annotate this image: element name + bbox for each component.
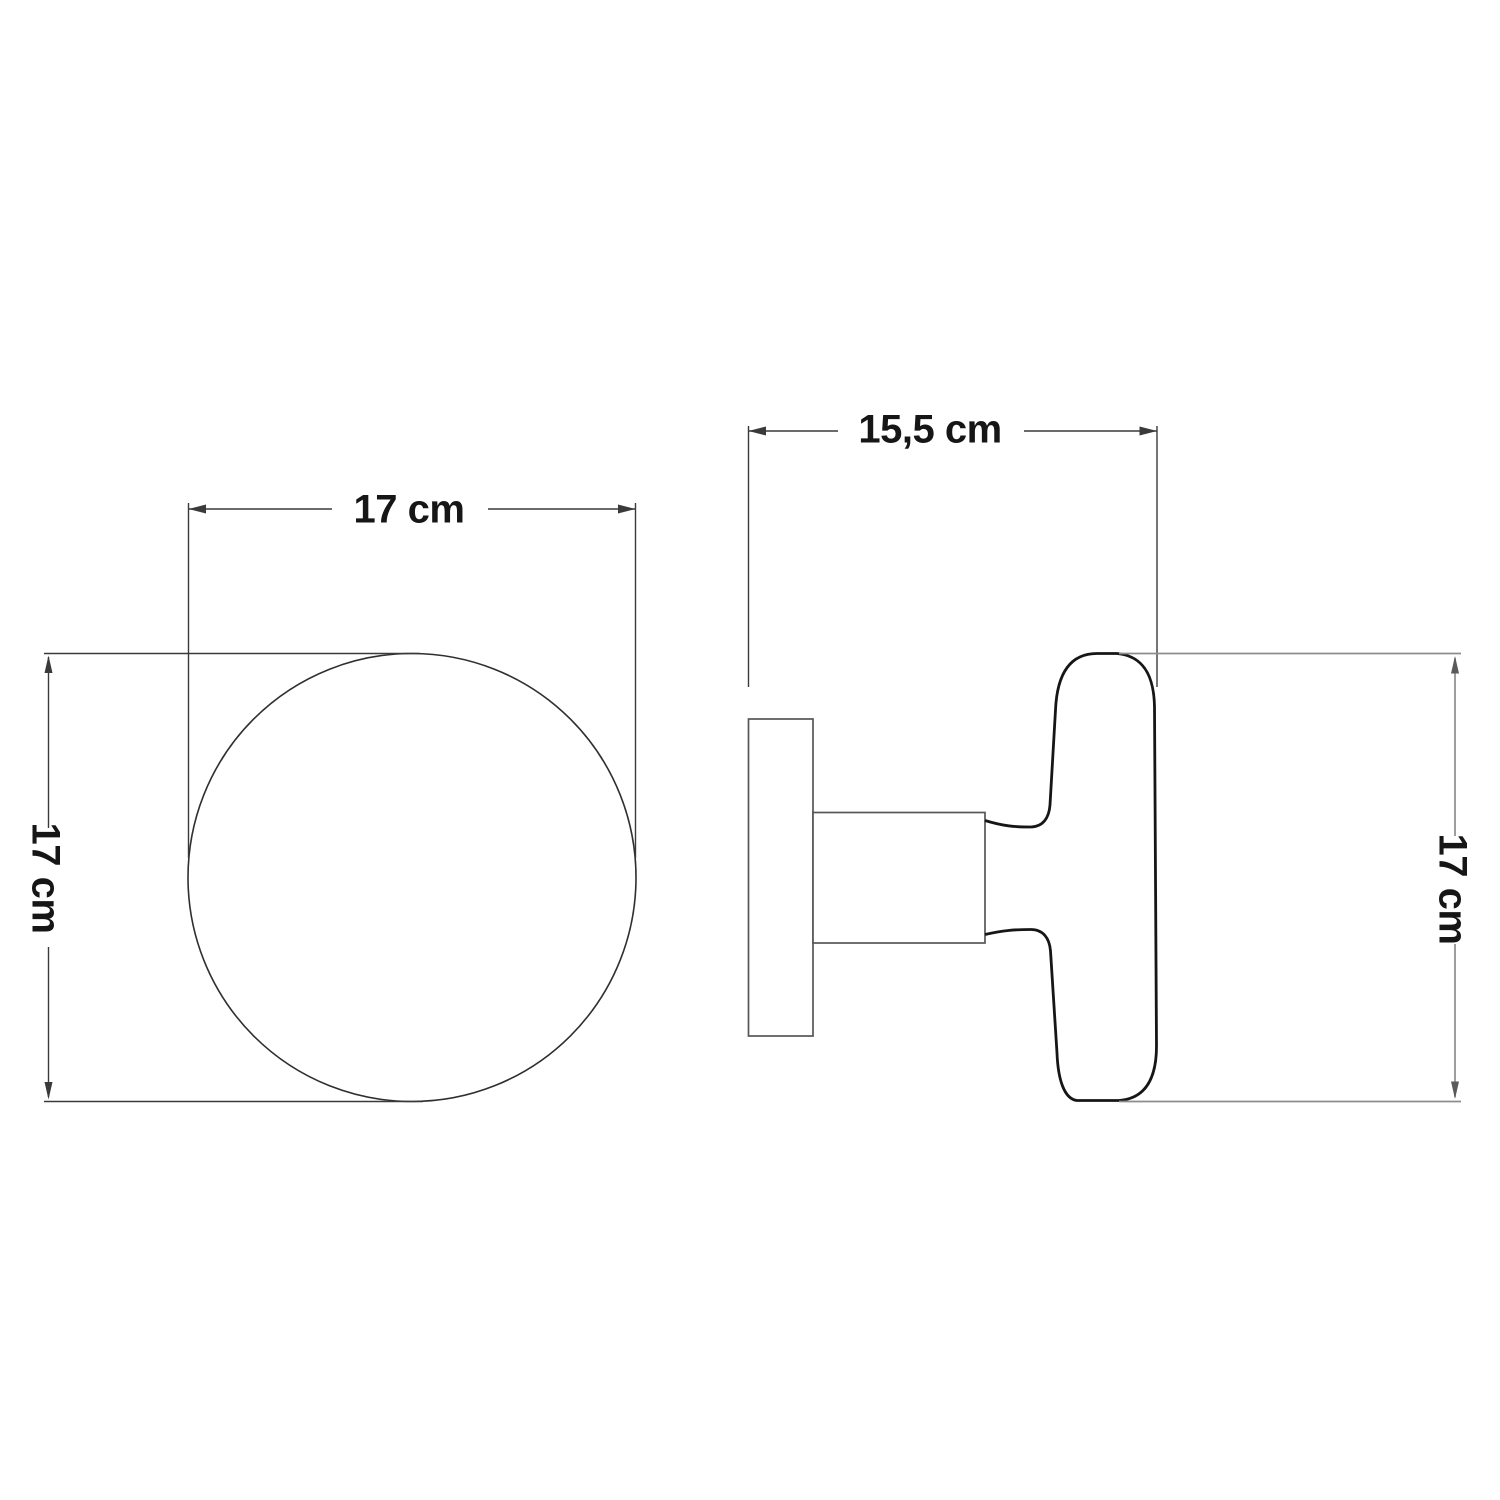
technical-drawing-canvas: 17 cm 17 cm 15,5 cm 17 cm xyxy=(0,0,1500,1500)
front-height-dimension-label: 17 cm xyxy=(23,823,68,934)
front-view-circle xyxy=(188,654,636,1102)
arrow-up-icon xyxy=(1451,656,1459,674)
arrow-right-icon xyxy=(1140,427,1158,436)
arrow-left-icon xyxy=(749,427,767,436)
side-height-dimension-label: 17 cm xyxy=(1430,834,1475,945)
arrow-down-icon xyxy=(45,1082,53,1100)
drawing-svg xyxy=(0,0,1500,1500)
arrow-right-icon xyxy=(618,505,636,514)
side-width-dimension-label: 15,5 cm xyxy=(858,408,1001,453)
side-view-wall-plate xyxy=(749,719,814,1036)
front-width-dimension-label: 17 cm xyxy=(354,488,465,533)
side-view-stem xyxy=(813,813,985,944)
side-view-knob-profile xyxy=(985,654,1157,1101)
arrow-down-icon xyxy=(1451,1082,1459,1100)
arrow-up-icon xyxy=(45,656,53,674)
arrow-left-icon xyxy=(189,505,207,514)
